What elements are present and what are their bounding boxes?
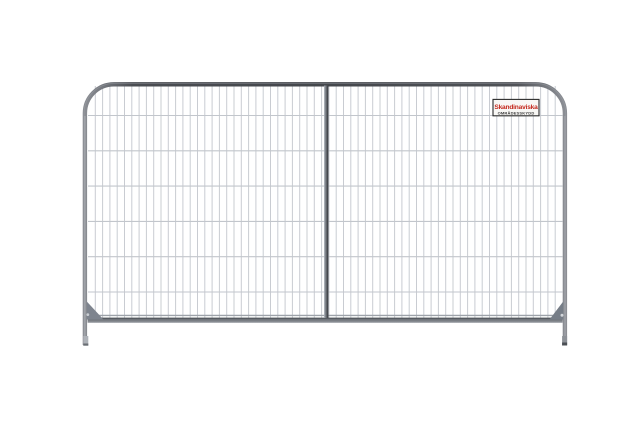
svg-text:OMRÅDESSKYDD: OMRÅDESSKYDD — [498, 110, 535, 115]
